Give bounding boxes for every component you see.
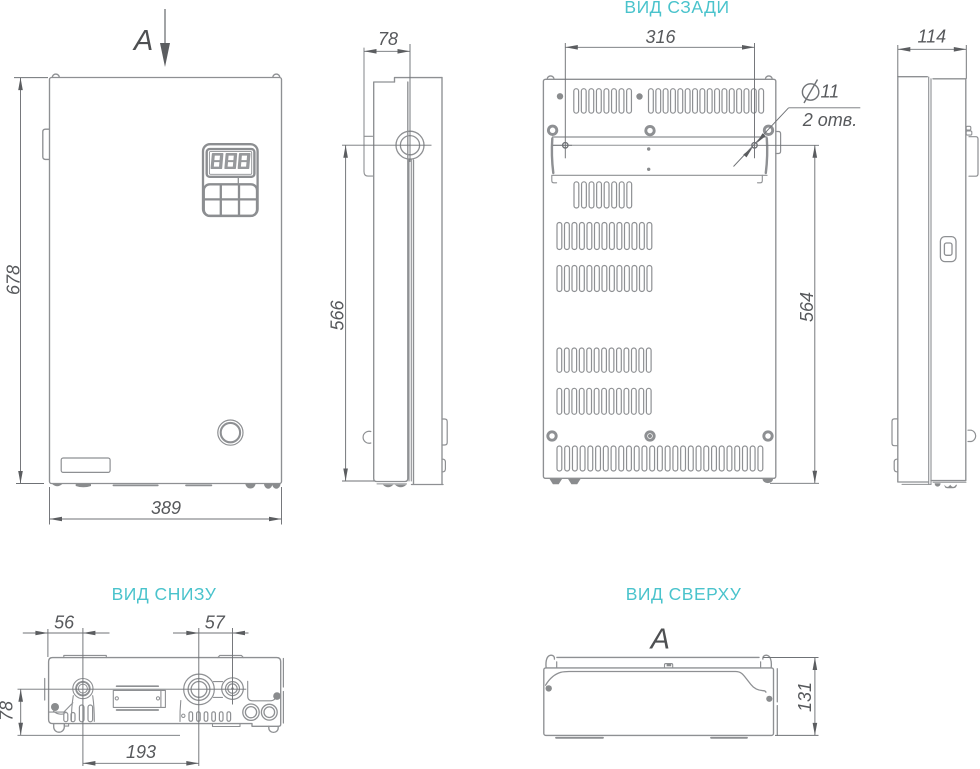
- svg-text:678: 678: [3, 265, 23, 295]
- svg-text:566: 566: [328, 300, 348, 331]
- svg-text:A: A: [132, 25, 153, 57]
- svg-text:ВИД СНИЗУ: ВИД СНИЗУ: [112, 584, 217, 604]
- svg-text:564: 564: [797, 292, 817, 322]
- svg-text:ВИД СВЕРХУ: ВИД СВЕРХУ: [626, 584, 742, 604]
- svg-text:193: 193: [126, 742, 156, 762]
- svg-text:114: 114: [917, 27, 946, 47]
- svg-text:78: 78: [378, 29, 398, 49]
- svg-text:131: 131: [795, 682, 815, 712]
- svg-text:389: 389: [151, 498, 181, 518]
- svg-text:11: 11: [821, 82, 840, 102]
- svg-text:57: 57: [205, 613, 226, 633]
- svg-text:78: 78: [0, 701, 17, 721]
- svg-text:56: 56: [54, 613, 75, 633]
- svg-text:A: A: [649, 624, 670, 656]
- svg-text:ВИД СЗАДИ: ВИД СЗАДИ: [624, 0, 729, 17]
- svg-text:2 отв.: 2 отв.: [802, 110, 857, 130]
- svg-text:316: 316: [645, 27, 676, 47]
